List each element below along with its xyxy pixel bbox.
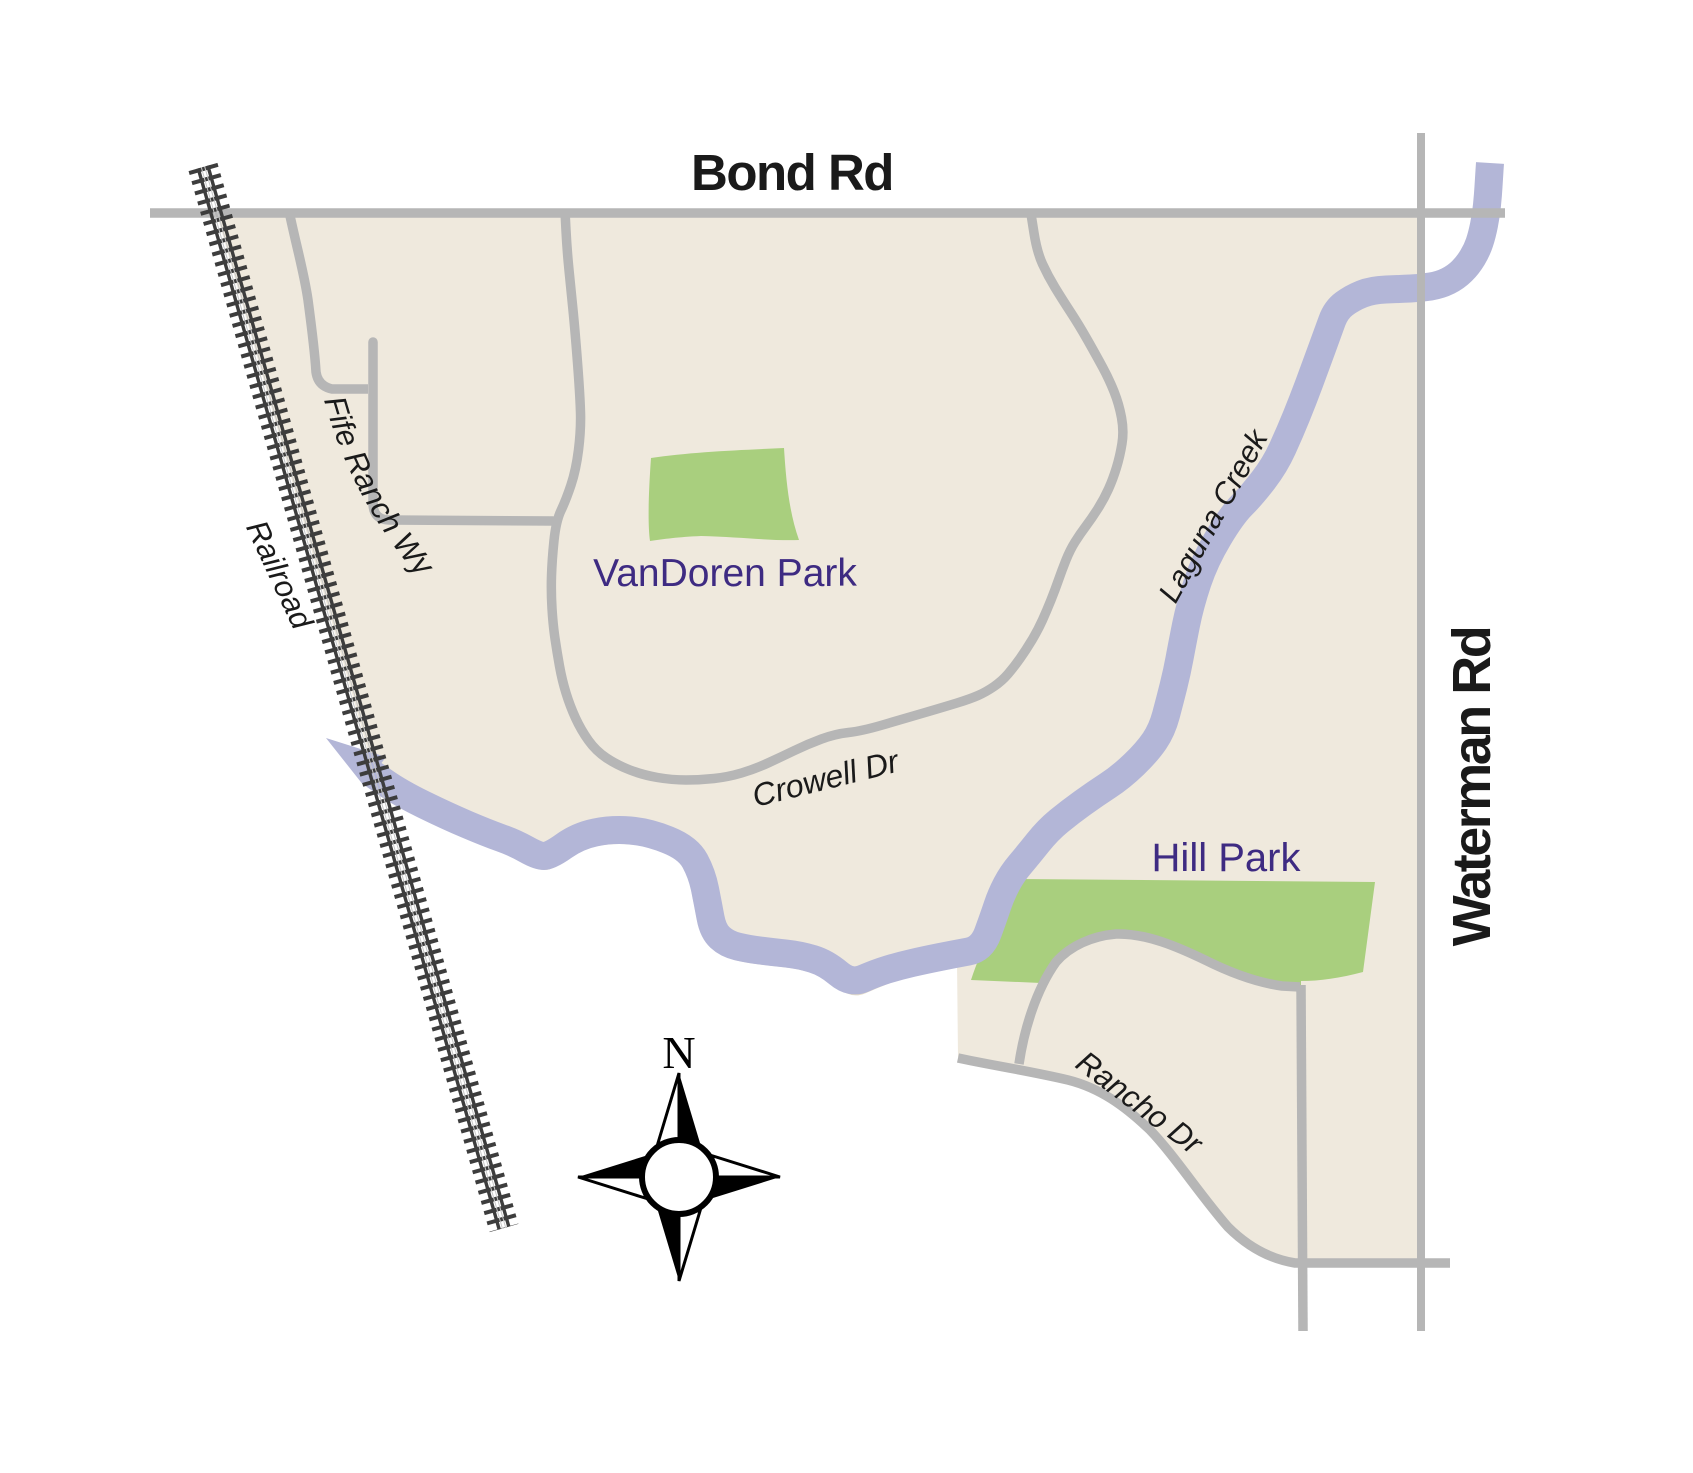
svg-text:VanDoren Park: VanDoren Park: [593, 552, 857, 595]
svg-text:Hill Park: Hill Park: [1152, 836, 1302, 880]
svg-text:N: N: [662, 1027, 695, 1078]
svg-text:Waterman Rd: Waterman Rd: [1442, 628, 1502, 947]
svg-text:Bond Rd: Bond Rd: [691, 144, 893, 201]
